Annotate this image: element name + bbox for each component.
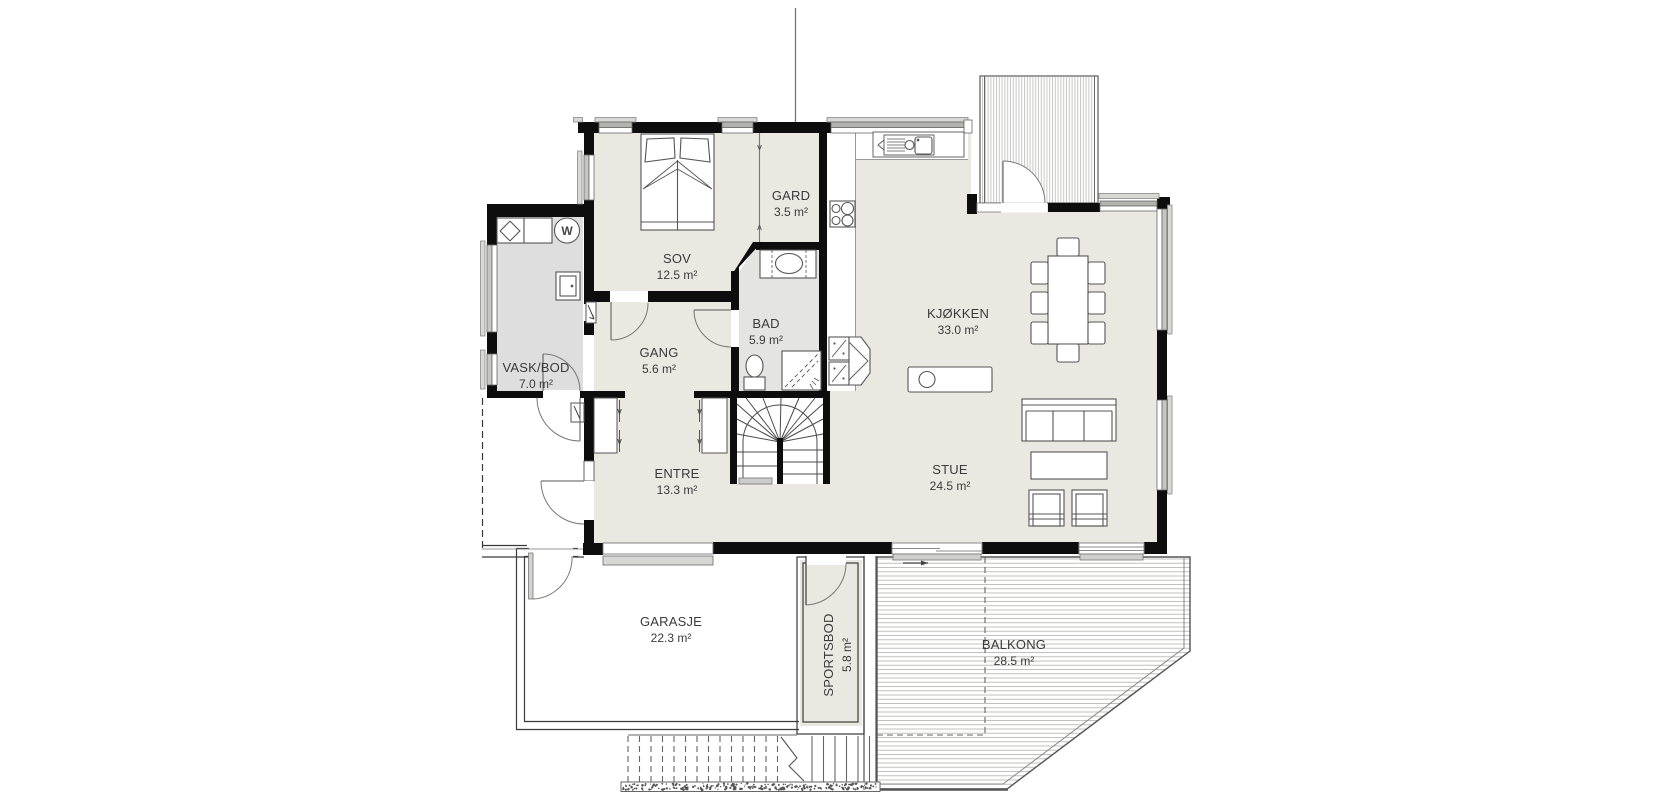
svg-text:GANG: GANG	[639, 345, 678, 360]
svg-text:ENTRE: ENTRE	[654, 466, 699, 481]
svg-text:GARD: GARD	[772, 188, 810, 203]
svg-text:VASK/BOD: VASK/BOD	[502, 360, 569, 375]
svg-text:33.0 m²: 33.0 m²	[938, 323, 979, 337]
svg-text:24.5 m²: 24.5 m²	[930, 479, 971, 493]
svg-text:13.3 m²: 13.3 m²	[657, 483, 698, 497]
svg-text:SOV: SOV	[663, 251, 691, 266]
svg-text:28.5 m²: 28.5 m²	[994, 654, 1035, 668]
svg-text:SPORTSBOD: SPORTSBOD	[821, 613, 836, 696]
svg-text:3.5 m²: 3.5 m²	[774, 205, 808, 219]
svg-text:22.3 m²: 22.3 m²	[651, 631, 692, 645]
svg-text:5.8 m²: 5.8 m²	[840, 638, 854, 672]
svg-text:KJØKKEN: KJØKKEN	[927, 306, 989, 321]
svg-text:BALKONG: BALKONG	[982, 637, 1046, 652]
svg-text:STUE: STUE	[932, 462, 968, 477]
svg-text:12.5 m²: 12.5 m²	[657, 268, 698, 282]
svg-text:5.6 m²: 5.6 m²	[642, 362, 676, 376]
svg-text:W: W	[561, 224, 573, 238]
svg-text:7.0 m²: 7.0 m²	[519, 377, 553, 391]
svg-text:5.9 m²: 5.9 m²	[749, 333, 783, 347]
svg-text:BAD: BAD	[752, 316, 779, 331]
svg-text:GARASJE: GARASJE	[640, 614, 702, 629]
